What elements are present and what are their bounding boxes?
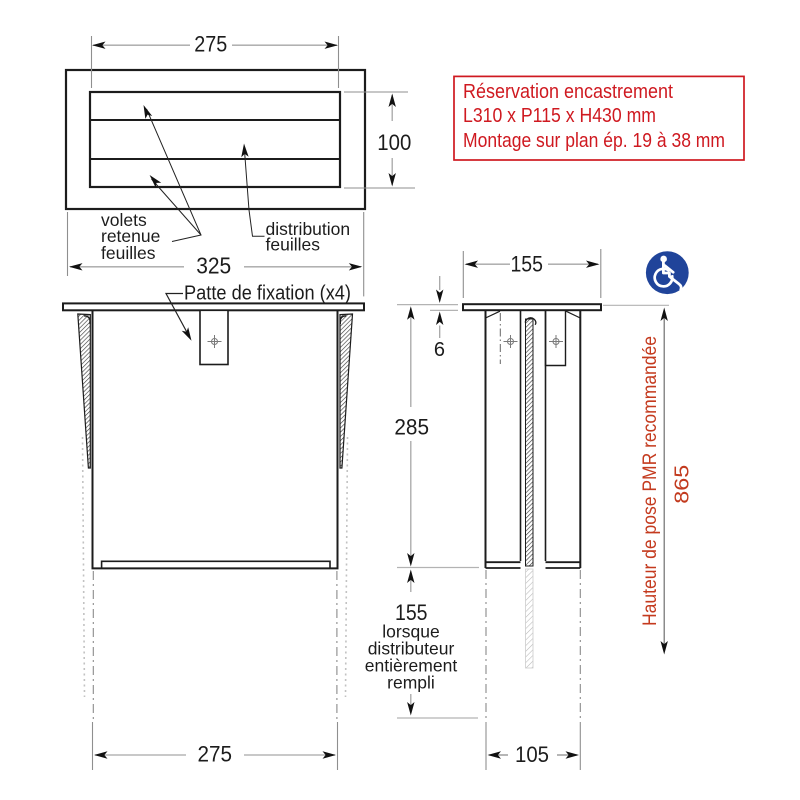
- svg-text:L310 x P115 x H430 mm: L310 x P115 x H430 mm: [463, 105, 656, 127]
- svg-text:105: 105: [515, 742, 549, 767]
- svg-text:Réservation encastrement: Réservation encastrement: [463, 81, 673, 103]
- svg-text:rempli: rempli: [387, 673, 435, 693]
- svg-text:285: 285: [394, 415, 429, 440]
- svg-text:100: 100: [377, 130, 411, 155]
- svg-text:Montage sur plan ép. 19 à 38 m: Montage sur plan ép. 19 à 38 mm: [463, 130, 725, 152]
- svg-text:155: 155: [510, 251, 543, 276]
- svg-text:feuilles: feuilles: [101, 243, 156, 263]
- svg-text:Patte de fixation (x4): Patte de fixation (x4): [184, 283, 351, 305]
- svg-text:Hauteur de pose PMR recommandé: Hauteur de pose PMR recommandée: [640, 336, 661, 626]
- svg-text:275: 275: [194, 32, 227, 57]
- svg-text:865: 865: [672, 465, 694, 504]
- svg-text:6: 6: [434, 339, 445, 361]
- svg-text:feuilles: feuilles: [266, 235, 321, 255]
- svg-text:325: 325: [196, 252, 231, 278]
- svg-text:275: 275: [198, 742, 233, 767]
